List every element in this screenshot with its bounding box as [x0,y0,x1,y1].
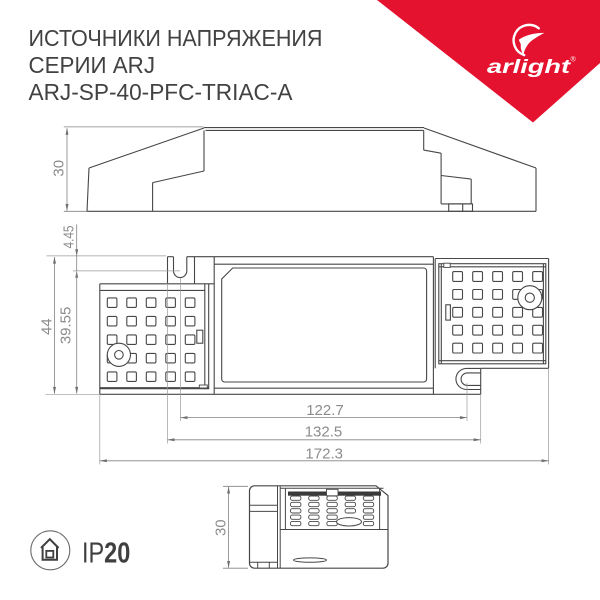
svg-text:arlight: arlight [487,57,572,78]
svg-text:172.3: 172.3 [305,445,343,462]
svg-text:ARJ-SP-40-PFC-TRIAC-A: ARJ-SP-40-PFC-TRIAC-A [29,79,294,105]
svg-text:44: 44 [39,318,56,335]
svg-text:30: 30 [51,160,68,177]
svg-text:®: ® [571,56,577,64]
svg-text:132.5: 132.5 [305,423,343,440]
svg-text:ИСТОЧНИКИ НАПРЯЖЕНИЯ: ИСТОЧНИКИ НАПРЯЖЕНИЯ [29,25,323,51]
svg-text:СЕРИИ ARJ: СЕРИИ ARJ [29,52,156,78]
svg-text:4.45: 4.45 [60,226,77,249]
svg-text:30: 30 [212,519,229,536]
svg-text:39.55: 39.55 [58,307,75,345]
svg-text:122.7: 122.7 [306,402,344,419]
svg-text:IP20: IP20 [82,536,130,569]
